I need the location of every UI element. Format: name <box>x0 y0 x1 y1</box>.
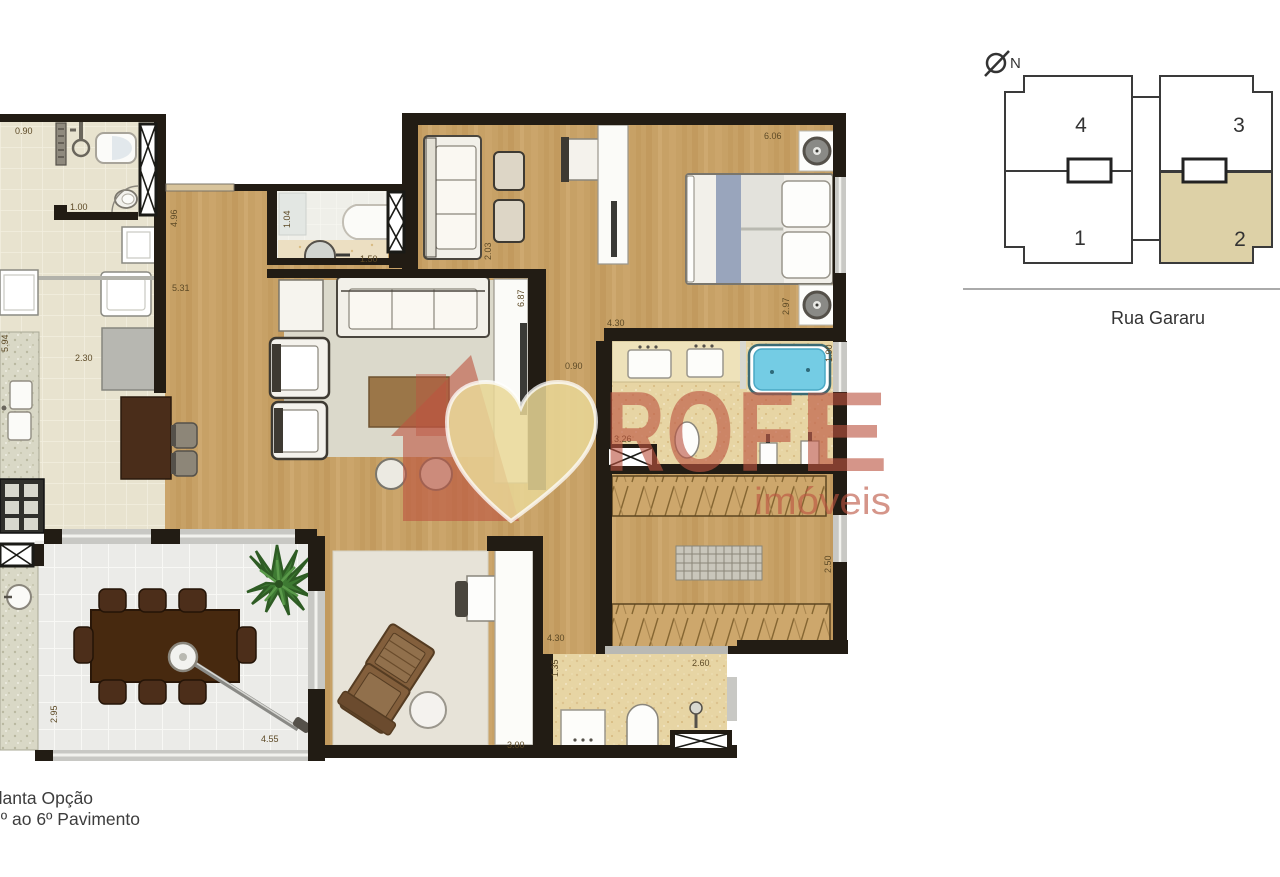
svg-text:1.00: 1.00 <box>70 202 88 212</box>
svg-text:2.60: 2.60 <box>692 658 710 668</box>
svg-text:Planta Opção: Planta Opção <box>0 788 93 808</box>
svg-text:2.30: 2.30 <box>75 353 93 363</box>
svg-text:3: 3 <box>1233 114 1245 137</box>
svg-text:4.96: 4.96 <box>169 209 179 227</box>
svg-text:6.06: 6.06 <box>764 131 782 141</box>
svg-text:2.03: 2.03 <box>483 242 493 260</box>
svg-text:5.31: 5.31 <box>172 283 190 293</box>
svg-text:0.90: 0.90 <box>565 361 583 371</box>
svg-text:6.87: 6.87 <box>516 289 526 307</box>
svg-text:1º ao 6º Pavimento: 1º ao 6º Pavimento <box>0 809 140 829</box>
svg-text:0.90: 0.90 <box>15 126 33 136</box>
svg-text:2.97: 2.97 <box>781 297 791 315</box>
svg-text:2: 2 <box>1234 228 1246 251</box>
svg-text:3.00: 3.00 <box>507 740 525 750</box>
svg-text:1: 1 <box>1074 227 1086 250</box>
svg-text:N: N <box>1010 55 1021 72</box>
svg-text:5.94: 5.94 <box>0 334 10 352</box>
svg-text:1.50: 1.50 <box>360 254 378 264</box>
svg-text:1.04: 1.04 <box>282 210 292 228</box>
svg-text:F: F <box>737 369 795 496</box>
svg-text:1.35: 1.35 <box>550 659 560 677</box>
svg-text:4: 4 <box>1075 114 1087 137</box>
svg-text:4.30: 4.30 <box>547 633 565 643</box>
svg-text:2.50: 2.50 <box>823 555 833 573</box>
svg-text:4.30: 4.30 <box>607 318 625 328</box>
svg-text:2.95: 2.95 <box>49 705 59 723</box>
svg-text:E: E <box>799 369 889 496</box>
svg-text:1.90: 1.90 <box>824 344 834 362</box>
svg-text:O: O <box>666 369 734 496</box>
svg-text:imóveis: imóveis <box>754 481 891 523</box>
svg-text:4.55: 4.55 <box>261 734 279 744</box>
svg-text:Rua Gararu: Rua Gararu <box>1111 308 1205 328</box>
svg-text:R: R <box>605 369 665 496</box>
